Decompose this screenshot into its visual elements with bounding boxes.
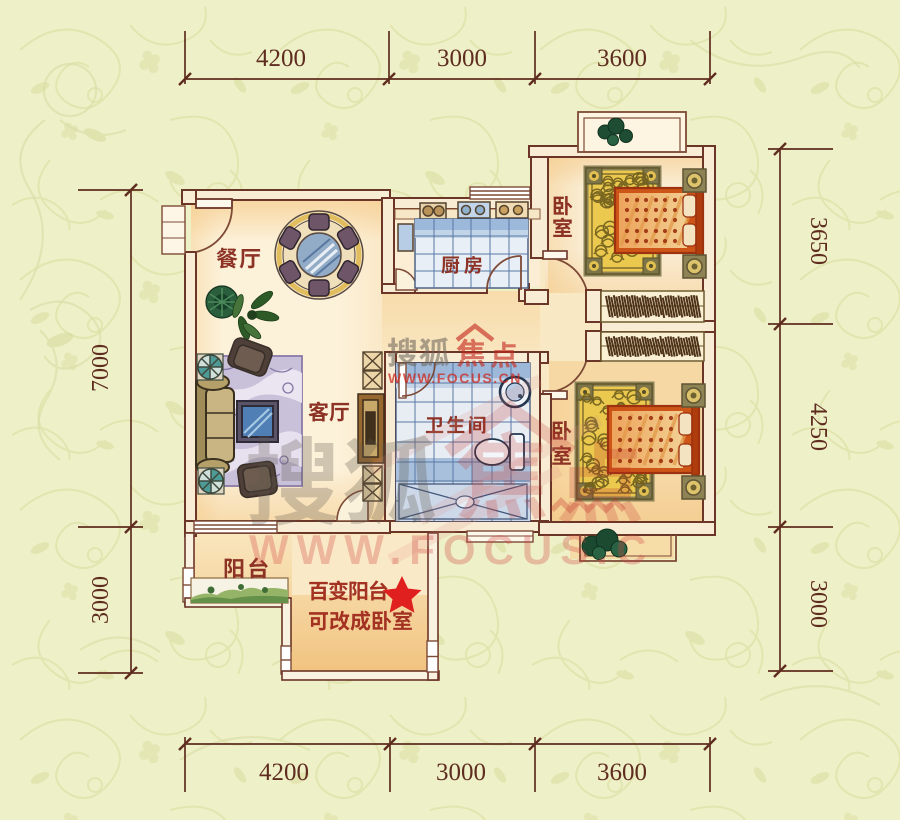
- svg-text:3650: 3650: [805, 217, 831, 265]
- svg-text:3000: 3000: [436, 759, 486, 786]
- svg-text:3000: 3000: [805, 580, 831, 628]
- svg-text:4200: 4200: [259, 759, 309, 786]
- svg-text:4250: 4250: [805, 403, 831, 451]
- svg-text:WWW.FOCUS.CN: WWW.FOCUS.CN: [388, 370, 522, 386]
- svg-text:3600: 3600: [597, 45, 647, 72]
- svg-text:7000: 7000: [88, 344, 114, 392]
- svg-text:3000: 3000: [437, 45, 487, 72]
- svg-text:3000: 3000: [88, 576, 114, 624]
- svg-text:WWW.FOCUS.C: WWW.FOCUS.C: [249, 526, 654, 573]
- svg-text:4200: 4200: [256, 45, 306, 72]
- svg-text:3600: 3600: [597, 759, 647, 786]
